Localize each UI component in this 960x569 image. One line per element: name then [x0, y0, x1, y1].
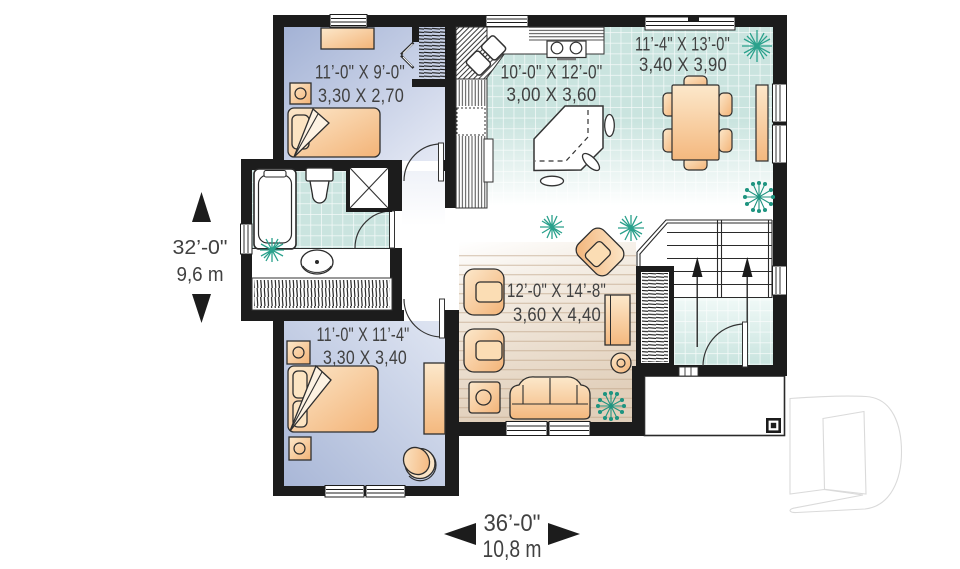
svg-text:11’-0" X 11’-4": 11’-0" X 11’-4" [317, 325, 410, 346]
svg-text:3,00 X 3,60: 3,00 X 3,60 [507, 85, 597, 106]
svg-text:3,40 X 3,90: 3,40 X 3,90 [639, 55, 727, 76]
svg-text:11’-0" X 9’-0": 11’-0" X 9’-0" [315, 63, 405, 84]
svg-text:10,8 m: 10,8 m [483, 536, 542, 563]
svg-text:11’-4" X 13’-0": 11’-4" X 13’-0" [635, 35, 730, 56]
svg-text:10’-0" X 12’-0": 10’-0" X 12’-0" [501, 63, 603, 84]
svg-text:3,60 X 4,40: 3,60 X 4,40 [513, 305, 601, 326]
svg-text:9,6 m: 9,6 m [177, 264, 224, 286]
svg-text:12’-0" X 14’-8": 12’-0" X 14’-8" [507, 281, 606, 302]
svg-text:32’-0": 32’-0" [173, 237, 228, 259]
svg-text:3,30 X 2,70: 3,30 X 2,70 [318, 86, 404, 107]
svg-text:36’-0": 36’-0" [484, 510, 541, 537]
svg-text:3,30 X 3,40: 3,30 X 3,40 [323, 348, 407, 369]
